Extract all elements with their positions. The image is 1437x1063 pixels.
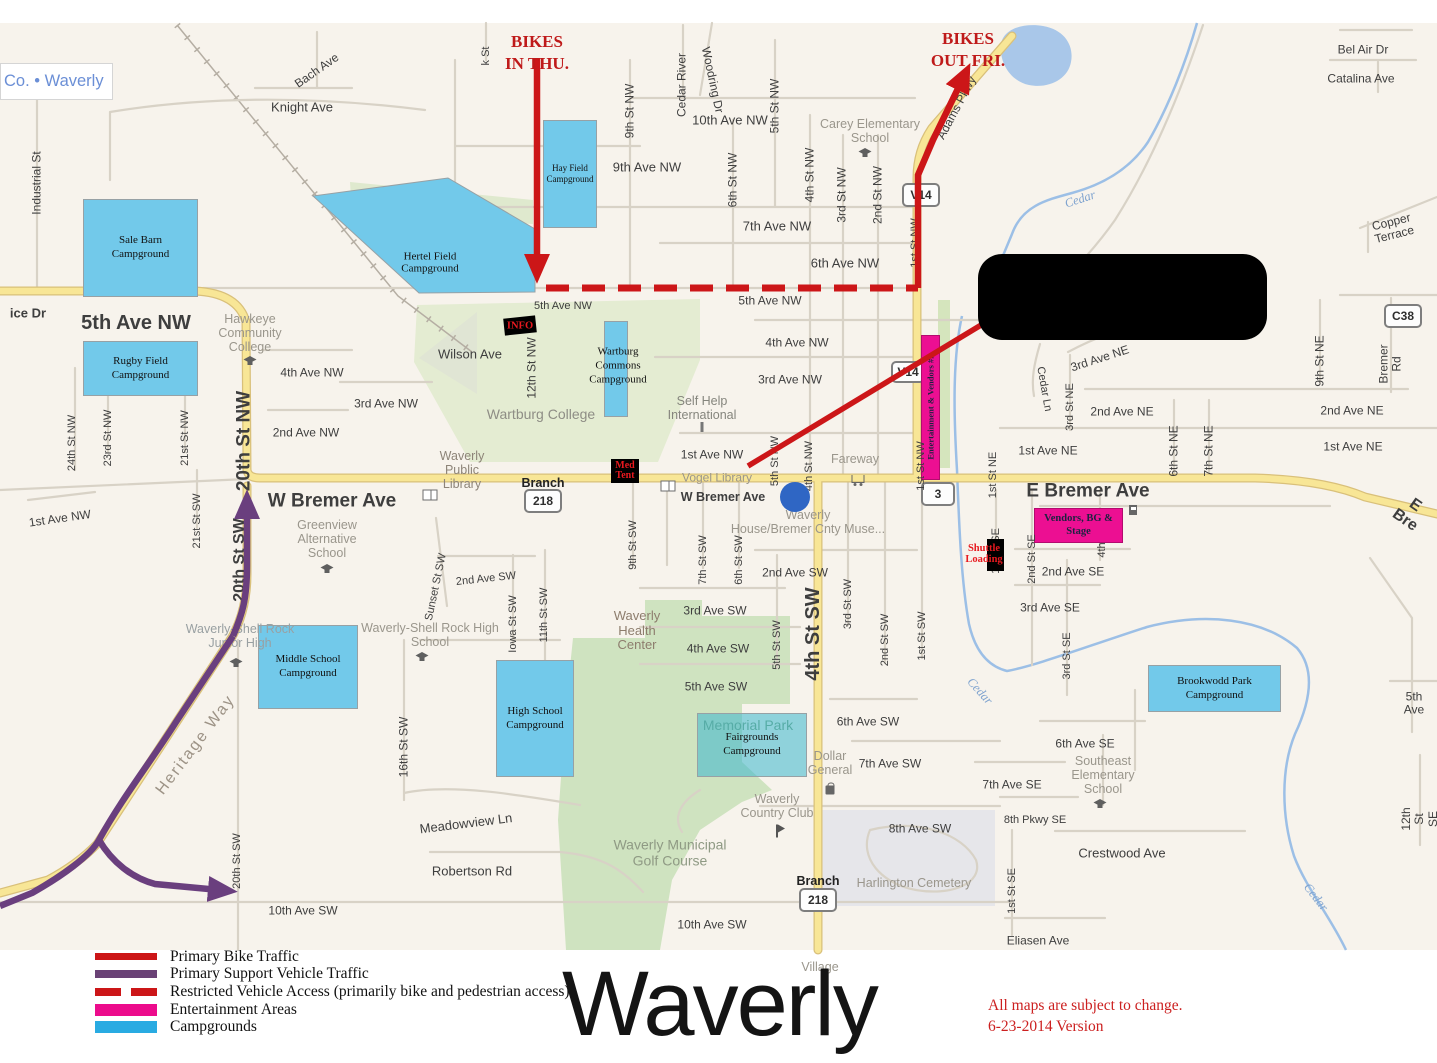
campground-box: Wartburg Commons Campground: [604, 321, 628, 417]
cart-icon: [852, 475, 865, 483]
legend-swatch: [95, 1021, 157, 1033]
street-label: 3rd St SW: [842, 579, 854, 629]
street-label: 21st St NW: [179, 410, 191, 466]
poi-label: Waverly Country Club: [741, 792, 814, 820]
highway-shield: V14: [902, 183, 940, 207]
street-label: 5th Ave SW: [685, 680, 747, 693]
street-label: 20th St SW: [231, 518, 249, 602]
street-label: Branch: [521, 476, 564, 490]
street-label: 3rd St NE: [1064, 383, 1076, 431]
street-label: k St: [480, 47, 492, 66]
entertainment-area: Vendors, BG & Stage: [1034, 508, 1123, 543]
street-label: 3rd Ave SW: [683, 604, 746, 617]
poi-label: Vogel Library: [682, 471, 752, 484]
swatch-bar: [95, 970, 157, 978]
street-label: 4th Ave SW: [687, 642, 749, 655]
restricted-access-swatch: [95, 988, 157, 996]
street-label: 7th Ave NW: [743, 220, 811, 235]
street-label: 9th St NW: [623, 84, 636, 139]
legend-item: Restricted Vehicle Access (primarily bik…: [95, 983, 570, 1001]
poi-label: Dollar General: [808, 749, 852, 777]
street-label: 3rd St NW: [835, 167, 848, 222]
legend-item: Entertainment Areas: [95, 1001, 570, 1019]
bikes-in-annotation: BIKES IN THU.: [505, 31, 569, 75]
street-label: 1st St NW: [915, 441, 927, 491]
street-label: 1st Ave NE: [1323, 440, 1382, 453]
street-label: 6th Ave SE: [1055, 737, 1114, 750]
legend-swatch: [95, 970, 157, 978]
poi-label: Hawkeye Community College: [218, 312, 281, 354]
dash-segment: [95, 988, 121, 996]
street-label: 3rd Ave SE: [1020, 601, 1080, 614]
legend-item: Primary Bike Traffic: [95, 948, 570, 966]
poi-label: Waverly Public Library: [440, 449, 485, 491]
school-icon: [859, 148, 872, 158]
hertel-campground-polygon: [313, 178, 535, 293]
swatch-bar: [95, 1021, 157, 1033]
water-layer: [955, 23, 1346, 950]
street-label: 4th St NW: [803, 148, 816, 203]
street-label: 5th Ave NW: [738, 294, 801, 307]
campground-box: Hay Field Campground: [543, 120, 597, 228]
street-label: 12th St NW: [525, 337, 538, 398]
highway-shield: 218: [799, 888, 837, 912]
version-note: All maps are subject to change. 6-23-201…: [988, 995, 1183, 1037]
entertainment-label: Vendors, BG & Stage: [1044, 513, 1113, 538]
street-label: Iowa St SW: [507, 595, 519, 652]
street-label: 1st St SW: [916, 612, 928, 661]
street-label: 5th Ave NW: [534, 300, 592, 312]
poi-label: Waverly-Shell Rock Junior High: [186, 622, 295, 650]
street-label: ice Dr: [10, 307, 46, 322]
waverly-route-map: Sale Barn CampgroundHay Field Campground…: [0, 0, 1437, 1063]
poi-label: Carey Elementary School: [820, 117, 920, 145]
street-label: 8th Pkwy SE: [1004, 814, 1066, 826]
campground-label: High School Campground: [506, 705, 563, 733]
street-label: Wilson Ave: [438, 348, 502, 363]
book-icon: [661, 481, 676, 492]
version-line-2: 6-23-2014 Version: [988, 1016, 1183, 1037]
street-label: 3rd St SE: [1061, 632, 1073, 679]
map-canvas: Sale Barn CampgroundHay Field Campground…: [0, 23, 1437, 950]
street-label: 1st St SE: [1006, 868, 1018, 914]
street-label: Knight Ave: [271, 101, 333, 116]
street-label: 9th St SW: [627, 520, 639, 570]
flag-icon: [776, 825, 778, 838]
street-label: 2nd Ave NE: [1090, 405, 1153, 418]
legend-label: Restricted Vehicle Access (primarily bik…: [170, 983, 570, 1001]
poi-label: Wartburg College: [487, 407, 595, 423]
street-label: 2nd Ave NE: [1320, 404, 1383, 417]
street-label: 7th St NE: [1202, 425, 1215, 476]
bikes-out-annotation: BIKES OUT FRI.: [931, 28, 1005, 72]
map-attribution: Co. • Waverly: [0, 63, 113, 100]
school-icon: [230, 658, 243, 668]
campground-label: Rugby Field Campground: [112, 355, 169, 383]
legend-label: Primary Support Vehicle Traffic: [170, 965, 369, 983]
street-label: 5th St SW: [771, 620, 783, 670]
street-label: 4th St SW: [802, 587, 824, 680]
street-label: 4th St NW: [803, 441, 815, 491]
street-label: 4th Ave NW: [280, 366, 343, 379]
campground-box: High School Campground: [496, 660, 574, 777]
street-label: 10th Ave SW: [268, 904, 337, 917]
legend-swatch: [95, 1004, 157, 1016]
legend-item: Campgrounds: [95, 1018, 570, 1036]
street-label: 4th: [1096, 542, 1108, 557]
street-label: 16th St SW: [397, 717, 410, 778]
campground-box: Rugby Field Campground: [83, 341, 198, 396]
street-label: 5th Ave NW: [81, 312, 191, 334]
poi-label: Waverly House/Bremer Cnty Muse...: [731, 508, 885, 536]
street-label: 20th St NW: [233, 391, 254, 491]
school-icon: [244, 356, 257, 366]
shuttle-loading-label: Shuttle Loading: [965, 543, 1002, 565]
campground-label: Wartburg Commons Campground: [563, 345, 673, 386]
street-label: 1st St NE: [987, 452, 999, 498]
street-label: 11th St SW: [538, 588, 550, 643]
school-icon: [416, 652, 429, 662]
book-icon: [423, 490, 438, 501]
street-label: 5th St NW: [769, 436, 781, 486]
downtown-blue-dot: [780, 482, 810, 512]
legend-label: Entertainment Areas: [170, 1001, 297, 1019]
street-label: 2nd St SE: [1026, 534, 1038, 584]
street-label: 1st St NW: [909, 218, 921, 268]
campground-label: Fairgrounds Campground: [723, 731, 780, 759]
campground-label: Hertel Field Campground: [401, 251, 458, 276]
gas-icon: [1129, 505, 1137, 515]
street-label: 6th Ave NW: [811, 257, 879, 272]
street-label: 2nd Ave SW: [762, 566, 828, 579]
street-label: 8th Ave SW: [889, 822, 951, 835]
street-label: 1st Ave NE: [1018, 444, 1077, 457]
street-label: Branch: [796, 874, 839, 888]
basemap-layer: [0, 0, 1437, 1063]
info-marker-label: INFO: [507, 321, 533, 332]
street-label: 9th Ave NW: [613, 161, 681, 176]
street-label: Bremer Rd: [1378, 341, 1405, 387]
street-label: 4th Ave NW: [765, 336, 828, 349]
street-label: Eliasen Ave: [1007, 934, 1070, 947]
street-label: 7th St SW: [697, 535, 709, 585]
street-label: 10th Ave SW: [677, 918, 746, 931]
campground-box: Brookwodd Park Campground: [1148, 665, 1281, 712]
street-label: 10th Ave NW: [692, 114, 768, 129]
street-label: 3rd Ave NW: [758, 373, 822, 386]
street-label: 3rd Ave NW: [354, 397, 418, 410]
legend-label: Primary Bike Traffic: [170, 948, 299, 966]
street-label: 23rd St NW: [102, 410, 114, 467]
med-tent-label: Med Tent: [615, 461, 634, 481]
street-label: Bel Air Dr: [1338, 43, 1389, 56]
street-label: 2nd St NW: [871, 166, 884, 224]
street-label: 9th St NE: [1313, 335, 1326, 386]
campground-label: Brookwodd Park Campground: [1177, 675, 1252, 703]
attribution-text: Co. • Waverly: [4, 72, 104, 91]
pillar-icon: [701, 422, 704, 432]
poi-label: Waverly Municipal Golf Course: [613, 837, 726, 868]
legend: Primary Bike TrafficPrimary Support Vehi…: [95, 948, 570, 1036]
street-label: 2nd St SW: [879, 614, 891, 667]
street-label: Catalina Ave: [1327, 72, 1394, 85]
street-label: 12th St SE: [1400, 807, 1437, 830]
campground-box: Sale Barn Campground: [83, 199, 198, 297]
legend-swatch: [95, 953, 157, 960]
street-label: 7th Ave SW: [859, 757, 921, 770]
dash-segment: [131, 988, 157, 996]
street-label: 20th St SW: [231, 833, 243, 889]
poi-label: Fareway: [831, 452, 879, 466]
school-icon: [1094, 799, 1107, 809]
street-label: 2nd Ave NW: [273, 426, 339, 439]
swatch-bar: [95, 953, 157, 960]
legend-item: Primary Support Vehicle Traffic: [95, 966, 570, 984]
street-label: 7th Ave SE: [982, 778, 1041, 791]
street-label: 5th Ave: [1403, 691, 1426, 718]
street-label: 24th St NW: [66, 415, 78, 471]
street-label: Cedar River: [675, 53, 688, 117]
street-label: Industrial St: [30, 151, 43, 214]
campground-box: Fairgrounds Campground: [697, 713, 807, 777]
street-label: 2nd Ave SE: [1042, 565, 1105, 578]
campground-label: Middle School Campground: [275, 653, 340, 681]
poi-label: Southeast Elementary School: [1071, 754, 1134, 796]
street-label: 21st St SW: [191, 493, 203, 548]
street-label: 5th St NW: [768, 79, 781, 134]
street-label: Crestwood Ave: [1078, 847, 1165, 862]
street-label: E Bremer Ave: [1026, 480, 1149, 501]
campground-label: Hay Field Campground: [547, 163, 594, 186]
street-label: W Bremer Ave: [268, 490, 396, 511]
poi-label: Greenview Alternative School: [297, 518, 357, 560]
legend-label: Campgrounds: [170, 1018, 257, 1036]
poi-label: Waverly-Shell Rock High School: [361, 621, 499, 649]
street-label: W Bremer Ave: [681, 490, 766, 504]
street-label: 1st Ave NW: [681, 448, 743, 461]
street-label: 6th St NW: [726, 153, 739, 208]
street-label: Robertson Rd: [432, 865, 512, 880]
school-icon: [321, 564, 334, 574]
highway-shield: C38: [1384, 304, 1422, 328]
street-label: 6th St NE: [1167, 425, 1180, 476]
street-label: 6th St SW: [733, 535, 745, 585]
poi-label: Waverly Health Center: [614, 609, 660, 653]
campground-label: Sale Barn Campground: [112, 234, 169, 262]
poi-label: Self Help International: [668, 394, 737, 422]
street-label: 6th Ave SW: [837, 715, 899, 728]
highway-shield: 218: [524, 489, 562, 513]
swatch-bar: [95, 1004, 157, 1016]
poi-label: Harlington Cemetery: [857, 876, 972, 890]
highway-shield: V14: [891, 361, 925, 383]
redacted-black-box: [978, 254, 1267, 340]
bag-icon: [826, 786, 835, 795]
page-title: Waverly: [562, 958, 877, 1050]
version-line-1: All maps are subject to change.: [988, 995, 1183, 1016]
